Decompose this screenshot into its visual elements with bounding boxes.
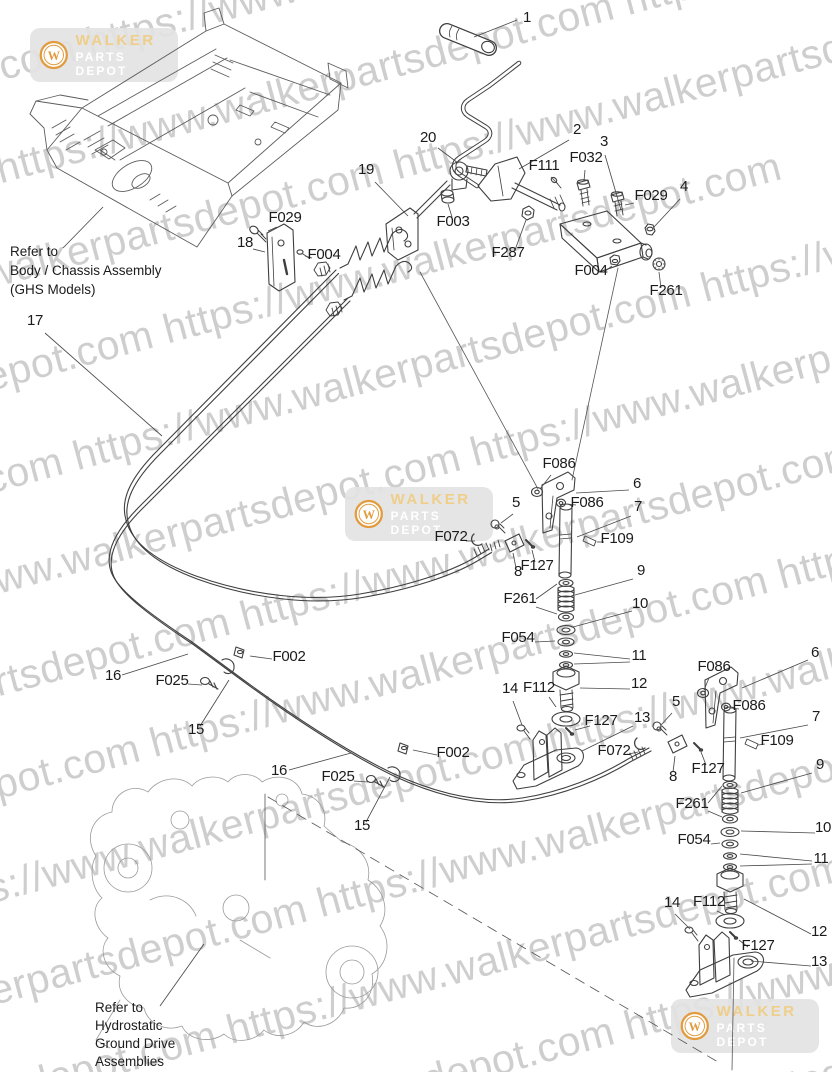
- callout-label: 11: [814, 850, 829, 867]
- note-leader-line: [63, 207, 103, 248]
- cable-17: [124, 270, 491, 601]
- callout-leader-line: [188, 684, 202, 685]
- callout-leader-line: [501, 514, 513, 523]
- callout-label: F003: [437, 213, 470, 230]
- callout-leader-line: [742, 660, 808, 688]
- callout-label: F112: [523, 679, 555, 696]
- callout-leader-line: [580, 688, 630, 689]
- callout-leader-line: [741, 831, 815, 833]
- extension-springs: [314, 229, 412, 316]
- callout-label: 13: [811, 953, 827, 970]
- callout-leader-line: [575, 579, 633, 595]
- callout-leader-line: [576, 490, 629, 493]
- callout-label: F086: [543, 455, 576, 472]
- parts-diagram-page: https://www.walkerpartsdepot.com https:/…: [0, 0, 832, 1072]
- callout-label: F072: [598, 742, 631, 759]
- callout-label: 13: [634, 709, 650, 726]
- exploded-parts-diagram: 120192F111F0323F0294F003F287F004F261F029…: [0, 0, 832, 1072]
- callout-label: 7: [634, 498, 642, 515]
- callout-label: F025: [322, 768, 355, 785]
- callout-label: F261: [676, 795, 709, 812]
- hydro-reference-note-line: Refer to: [95, 1000, 143, 1015]
- callout-label: F261: [504, 590, 537, 607]
- callout-label: F287: [492, 244, 525, 261]
- callout-label: F109: [761, 732, 794, 749]
- callout-label: F002: [437, 744, 470, 761]
- callout-leader-line: [573, 611, 632, 627]
- handle-grip: [447, 26, 496, 55]
- callout-label: F261: [650, 282, 683, 299]
- callout-label: 9: [816, 756, 824, 773]
- callout-leader-line: [751, 961, 811, 966]
- callout-label: 15: [354, 817, 370, 834]
- callout-leader-line: [45, 333, 162, 436]
- callout-label: 2: [573, 121, 581, 138]
- callout-leader-line: [675, 914, 690, 929]
- callout-leader-line: [250, 656, 272, 659]
- hydro-reference-note-line: Assemblies: [95, 1054, 164, 1069]
- callout-label: 16: [271, 762, 287, 779]
- callout-label: F072: [435, 528, 468, 545]
- callout-leader-line: [536, 607, 557, 614]
- hydro-reference-note-line: Ground Drive: [95, 1036, 175, 1051]
- callout-label: F127: [742, 937, 775, 954]
- callout-label: 20: [420, 129, 436, 146]
- callout-label: 12: [631, 675, 647, 692]
- callout-label: F054: [678, 831, 711, 848]
- callout-label: 3: [600, 133, 608, 150]
- callout-label: 10: [632, 595, 648, 612]
- callout-label: F004: [308, 246, 341, 263]
- callout-leader-line: [549, 697, 556, 707]
- callout-leader-line: [536, 584, 557, 599]
- callout-label: 6: [633, 475, 641, 492]
- callout-label: F032: [570, 149, 603, 166]
- chassis-reference-note-line: (GHS Models): [10, 282, 96, 297]
- callout-label: F109: [601, 530, 634, 547]
- callout-leader-line: [535, 641, 555, 642]
- callout-label: 11: [632, 647, 647, 664]
- callout-label: 5: [672, 693, 680, 710]
- callout-leader-line: [513, 701, 522, 725]
- callout-leader-line: [438, 148, 458, 163]
- callout-label: 18: [237, 234, 253, 251]
- callout-label: F029: [269, 209, 302, 226]
- callout-label: 6: [811, 644, 819, 661]
- callout-label: F002: [273, 648, 306, 665]
- callout-leader-line: [744, 899, 811, 934]
- callout-label: 9: [637, 562, 645, 579]
- callout-label: F025: [156, 672, 189, 689]
- callout-leader-line: [625, 203, 634, 205]
- callout-label: F127: [692, 760, 725, 777]
- callout-leader-line: [741, 773, 812, 793]
- callout-label: 14: [502, 680, 518, 697]
- callout-label: F127: [585, 712, 618, 729]
- callout-leader-line: [540, 475, 551, 489]
- callout-leader-line: [413, 750, 437, 755]
- callout-label: F111: [529, 157, 560, 174]
- callout-label: 19: [358, 161, 374, 178]
- callout-leader-line: [740, 854, 812, 861]
- callout-label: 1: [523, 9, 531, 26]
- callout-label: 4: [680, 178, 688, 195]
- callout-label: 8: [669, 768, 677, 785]
- callout-label: F054: [502, 629, 535, 646]
- callout-leader-line: [574, 662, 630, 664]
- callout-label: 17: [27, 312, 43, 329]
- note-leader-line: [160, 944, 204, 1006]
- chassis-reference-note-line: Refer to: [10, 244, 58, 259]
- callout-label: 16: [105, 667, 121, 684]
- callout-label: F086: [698, 658, 731, 675]
- callout-label: F086: [571, 494, 604, 511]
- callout-label: 12: [811, 923, 827, 940]
- callout-leader-line: [574, 653, 630, 659]
- callout-label: 15: [188, 721, 204, 738]
- bellcrank-assembly: [386, 162, 487, 260]
- callout-label: F004: [575, 262, 608, 279]
- callout-leader-line: [375, 182, 408, 216]
- callout-leader-line: [354, 781, 368, 782]
- bracket-18: [248, 224, 309, 291]
- callout-leader-line: [253, 249, 265, 252]
- callout-label: F029: [635, 187, 668, 204]
- callout-label: F112: [693, 893, 725, 910]
- callout-leader-line: [711, 843, 720, 844]
- callout-layer: 120192F111F0323F0294F003F287F004F261F029…: [27, 9, 831, 970]
- speed-control-crank: [454, 63, 565, 220]
- callout-leader-line: [740, 864, 812, 866]
- callout-leader-line: [717, 911, 725, 915]
- callout-leader-line: [661, 713, 672, 725]
- callout-label: F086: [733, 697, 766, 714]
- callout-label: F127: [521, 557, 554, 574]
- indicator-lines: [265, 268, 734, 1070]
- callout-leader-line: [474, 20, 517, 37]
- callout-label: 14: [664, 894, 680, 911]
- chassis-reference-note-line: Body / Chassis Assembly: [10, 263, 162, 278]
- hydro-reference-note-line: Hydrostatic: [95, 1018, 163, 1033]
- callout-leader-line: [708, 786, 722, 803]
- callout-leader-line: [708, 811, 722, 817]
- callout-label: 7: [812, 708, 820, 725]
- callout-label: 10: [815, 819, 831, 836]
- callout-label: 5: [512, 494, 520, 511]
